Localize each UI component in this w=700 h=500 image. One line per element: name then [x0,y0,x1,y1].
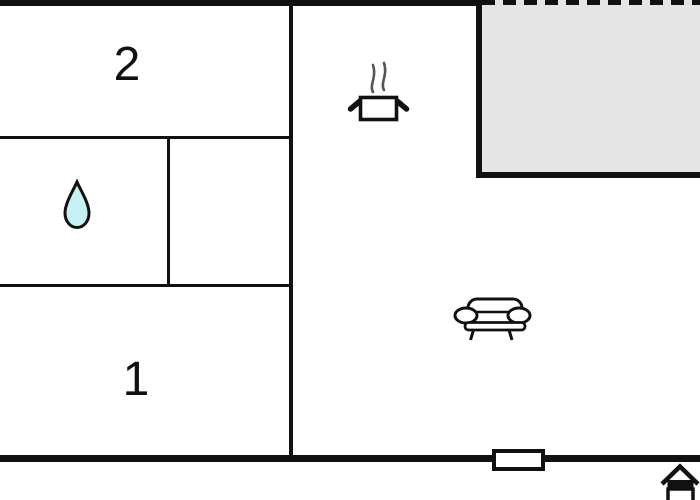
wall-bedroom2-bathroom [0,136,293,139]
floor-plan: 2 1 [0,0,700,500]
cooking-pot-icon [346,58,412,126]
wall-terrace-bottom [476,172,700,178]
wall-central-vertical [289,0,293,462]
wall-bottom [0,455,700,462]
terrace-area [482,0,700,172]
water-drop-icon [61,179,93,231]
sofa-icon [452,294,536,344]
wall-bathroom-bedroom1 [0,284,293,287]
wall-top [0,0,476,6]
wall-bathroom-hall [167,136,170,287]
house-icon [656,460,700,500]
room-label-bedroom1: 1 [106,352,166,407]
room-label-bedroom2: 2 [97,37,157,92]
window-marker [492,449,545,471]
wall-terrace-left [476,0,482,178]
terrace-dashed-edge-icon [482,0,700,5]
